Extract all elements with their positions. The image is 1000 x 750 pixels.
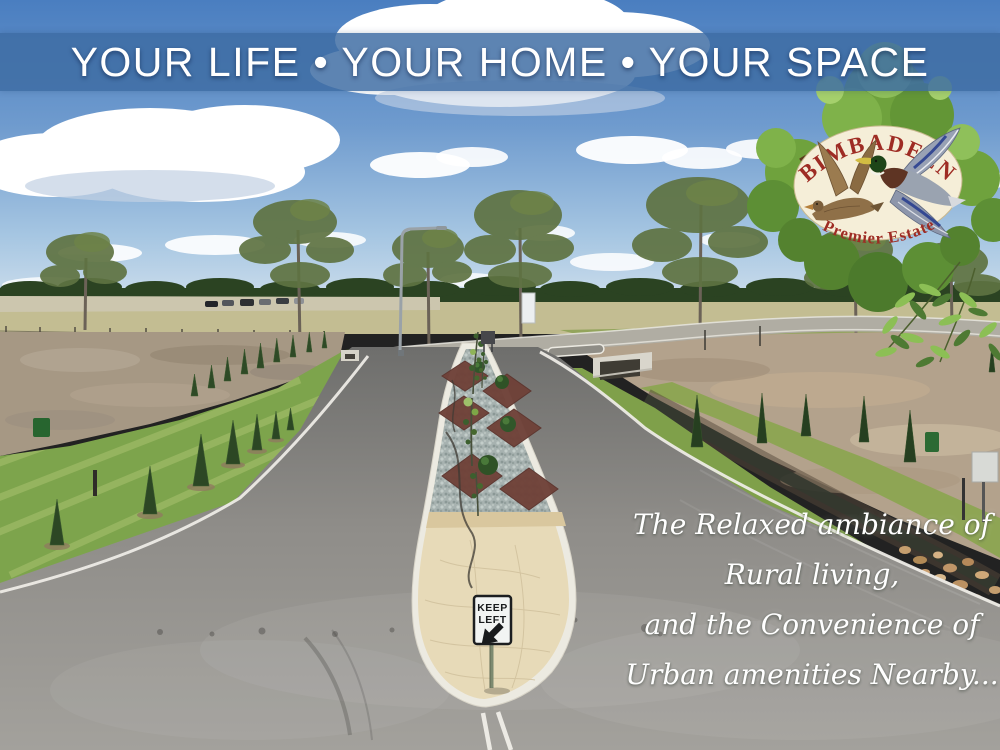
quote-line-4: Urban amenities Nearby... xyxy=(618,650,1000,700)
tagline-banner: YOUR LIFE • YOUR HOME • YOUR SPACE xyxy=(0,33,1000,91)
sign-back xyxy=(972,452,998,482)
bollard xyxy=(93,470,97,496)
lamp-head xyxy=(436,226,447,230)
green-utility-box xyxy=(925,432,939,452)
quote-line-3: and the Convenience of xyxy=(618,600,1000,650)
sign-text-left: LEFT xyxy=(478,614,506,626)
quote-line-2: Rural living, xyxy=(618,550,1000,600)
median-sign-back xyxy=(481,331,495,344)
banner-text: YOUR LIFE • YOUR HOME • YOUR SPACE xyxy=(71,39,930,86)
distant-highway xyxy=(0,296,440,312)
estate-marketing-poster: KEEP LEFT xyxy=(0,0,1000,750)
sign-text-keep: KEEP xyxy=(477,602,508,614)
white-monument xyxy=(522,293,535,323)
sand-band xyxy=(426,512,566,528)
green-utility-box xyxy=(33,418,50,437)
quote-line-1: The Relaxed ambiance of xyxy=(618,500,1000,550)
marketing-quote: The Relaxed ambiance of Rural living, an… xyxy=(618,500,1000,700)
